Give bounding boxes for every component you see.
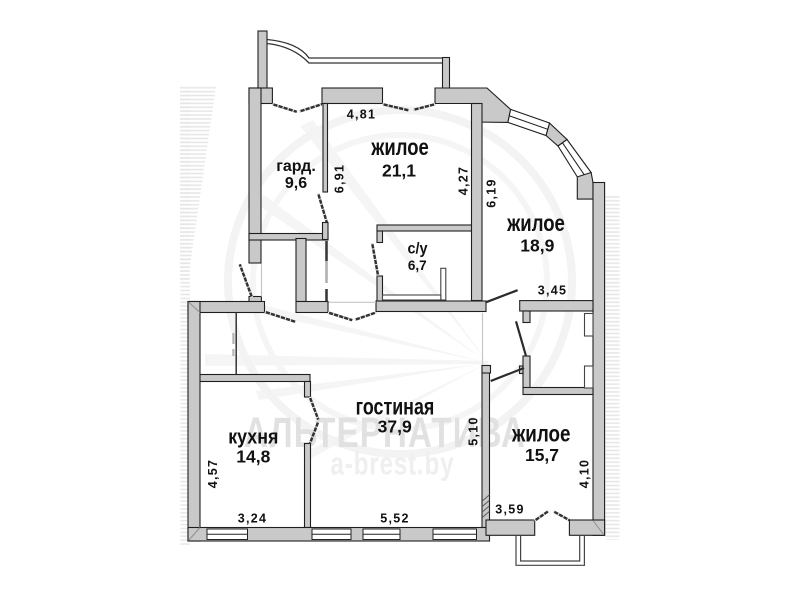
svg-text:6,19: 6,19 — [485, 178, 499, 208]
svg-text:гард.: гард. — [276, 158, 316, 175]
svg-text:3,45: 3,45 — [538, 284, 568, 298]
svg-text:жилое: жилое — [511, 421, 571, 448]
svg-text:жилое: жилое — [370, 135, 429, 161]
svg-text:3,24: 3,24 — [238, 512, 268, 526]
svg-text:жилое: жилое — [506, 211, 565, 237]
svg-text:6,7: 6,7 — [408, 258, 427, 273]
svg-text:21,1: 21,1 — [382, 161, 416, 181]
svg-text:5,52: 5,52 — [380, 512, 410, 526]
svg-text:6,91: 6,91 — [333, 164, 347, 194]
svg-text:4,81: 4,81 — [347, 108, 377, 122]
svg-text:с/у: с/у — [407, 240, 428, 258]
svg-text:14,8: 14,8 — [236, 447, 270, 467]
svg-text:4,27: 4,27 — [457, 166, 471, 196]
svg-text:4,57: 4,57 — [206, 459, 220, 489]
svg-text:3,59: 3,59 — [495, 503, 525, 517]
svg-text:15,7: 15,7 — [525, 445, 559, 465]
svg-text:a-brest.by: a-brest.by — [330, 446, 454, 482]
svg-text:4,10: 4,10 — [578, 459, 592, 489]
svg-text:37,9: 37,9 — [378, 416, 412, 436]
svg-text:9,6: 9,6 — [285, 175, 307, 192]
svg-text:18,9: 18,9 — [520, 235, 554, 255]
svg-text:5,10: 5,10 — [467, 416, 481, 446]
